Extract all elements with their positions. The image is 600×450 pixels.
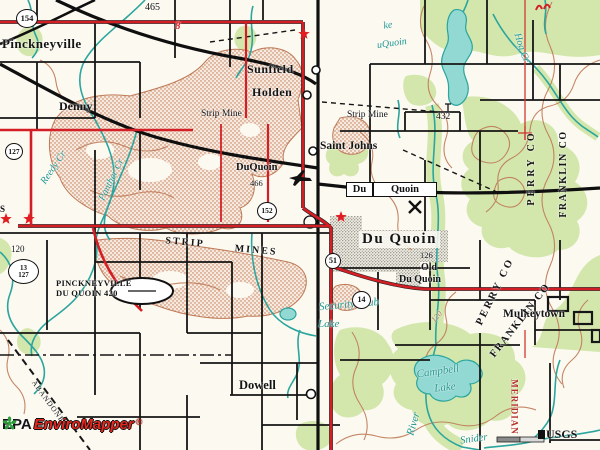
place-label-denny: Denny xyxy=(59,100,92,112)
edge-letter-s: S xyxy=(0,205,5,214)
place-label-saint-johns: Saint Johns xyxy=(320,141,377,153)
place-label-sunfield: Sunfield xyxy=(247,63,294,75)
place-label-holden: Holden xyxy=(252,86,292,98)
county-label-franklin-upper: FRANKLIN CO xyxy=(559,130,569,217)
route-shield-14: 14 xyxy=(352,291,371,309)
scale-bar xyxy=(497,430,545,442)
town-circle-saint-johns xyxy=(309,147,317,155)
elevation-120-left: 120 xyxy=(11,245,25,254)
topo-map[interactable]: Pinckneyville Denny Sunfield Holden Sain… xyxy=(0,0,600,450)
red-star-marker xyxy=(23,213,34,224)
route-shield-127-lower-label: 127 xyxy=(18,272,29,279)
water-label-security-lake: Lake xyxy=(318,319,339,330)
route-shield-152: 152 xyxy=(257,202,277,220)
county-label-perry-upper: PERRY CO xyxy=(527,130,537,205)
benchmark-tick xyxy=(445,104,451,112)
water-label-campbell-lake: Lake xyxy=(434,381,456,394)
section-number-8: 8 xyxy=(175,21,181,32)
registered-symbol: ® xyxy=(136,417,143,427)
place-label-duquoin-small: DuQuoin xyxy=(236,163,277,174)
usgs-credit: USGS xyxy=(546,428,577,440)
elevation-465: 465 xyxy=(145,3,160,13)
route-shield-154-label: 154 xyxy=(21,14,34,23)
city-label-duquoin: Du Quoin xyxy=(359,231,440,248)
airport-label-line2: DU QUOIN 420 xyxy=(56,289,118,298)
security-club-lake-shape xyxy=(280,308,296,320)
quad-name-box-quoin: Quoin xyxy=(373,182,437,197)
meridian-label: MERIDIAN xyxy=(510,379,519,435)
route-shield-us51-label: 51 xyxy=(329,257,337,265)
water-label-lake-frag1: ke xyxy=(383,20,393,31)
route-shield-us51: 51 xyxy=(325,253,341,269)
elevation-432: 432 xyxy=(436,113,450,123)
route-shield-152-label: 152 xyxy=(261,207,272,215)
elevation-466: 466 xyxy=(250,179,263,188)
place-label-dowell: Dowell xyxy=(239,379,276,392)
town-circle-sunfield xyxy=(312,66,320,74)
place-label-old-duquoin: Du Quoin xyxy=(399,275,441,285)
red-star-marker xyxy=(0,213,11,224)
enviromapper-logo: EPA EnviroMapper ® xyxy=(2,416,142,433)
route-shield-14-label: 14 xyxy=(358,296,366,304)
usgs-mark xyxy=(538,430,545,439)
epa-flower-icon xyxy=(2,416,17,431)
quad-name-box-du: Du xyxy=(346,182,373,197)
route-shield-154: 154 xyxy=(16,9,38,28)
feature-label-strip-mine-right: Strip Mine xyxy=(347,111,388,121)
route-shield-127-upper: 127 xyxy=(5,143,23,160)
route-shield-127-upper-label: 127 xyxy=(8,148,19,156)
town-circle-holden xyxy=(303,91,311,99)
mine-symbol xyxy=(409,201,421,213)
place-label-pinckneyville: Pinckneyville xyxy=(2,37,82,50)
route-shield-13-127: 13 127 xyxy=(8,259,39,284)
place-label-old: Old xyxy=(421,263,437,273)
elevation-126: 126 xyxy=(420,251,433,260)
feature-label-strip-mine-left: Strip Mine xyxy=(201,110,242,120)
enviromapper-wordmark: EnviroMapper xyxy=(34,416,134,433)
town-circle-dowell xyxy=(307,390,316,399)
airport-label-line1: PINCKNEYVILLE xyxy=(56,279,132,288)
airplane-icon xyxy=(289,170,312,186)
